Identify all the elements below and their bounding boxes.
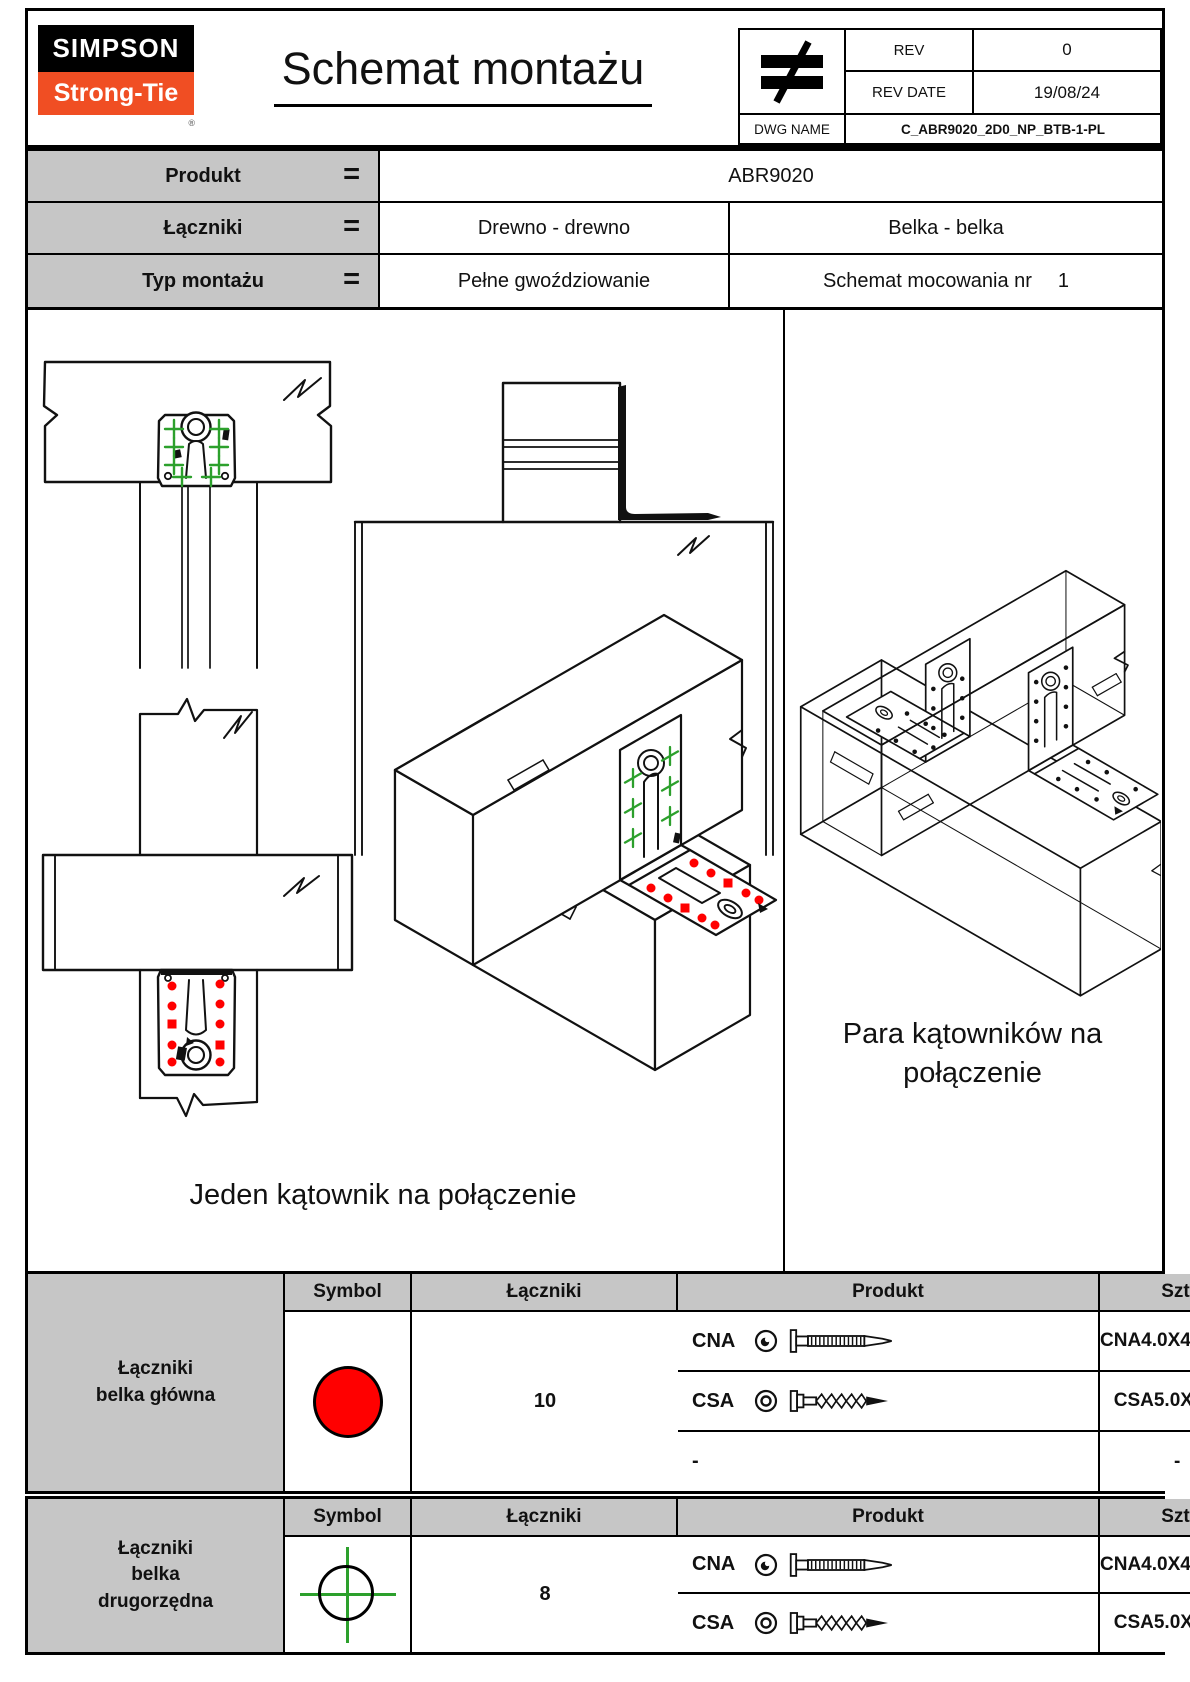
wood-screw-icon	[788, 1386, 908, 1416]
not-equal-projection-icon	[759, 43, 825, 101]
fastener-row-csa: CSA	[678, 1594, 1100, 1652]
fastener-row-csa: CSA	[678, 1372, 1100, 1432]
title-block: SIMPSON Strong-Tie® Schemat montażu REV …	[25, 8, 1165, 148]
mount-type-value: Pełne gwoździowanie	[380, 255, 730, 307]
simpson-strongtie-logo: SIMPSON Strong-Tie®	[38, 25, 194, 115]
rev-date-label: REV DATE	[846, 72, 974, 115]
fastener-table-secondary-beam: Łączniki belka drugorzędna Symbol Łączni…	[25, 1496, 1165, 1655]
rev-value: 0	[974, 30, 1160, 72]
cna-head-icon	[753, 1328, 779, 1354]
fasteners-value-left: Drewno - drewno	[380, 203, 730, 253]
csa-head-icon	[753, 1610, 779, 1636]
revision-block: REV 0 REV DATE 19/08/24 DWG NAME C_ABR90…	[738, 28, 1162, 145]
product-csa: CSA5.0X40/50	[1100, 1372, 1190, 1432]
product-empty: -	[1100, 1432, 1190, 1491]
page-title: Schemat montażu	[274, 43, 653, 107]
group-label-secondary-beam: Łączniki belka drugorzędna	[28, 1499, 285, 1652]
fastener-code: CNA	[692, 1330, 744, 1353]
logo-simpson: SIMPSON	[38, 25, 194, 72]
wood-screw-icon	[788, 1608, 908, 1638]
green-crosshair-symbol-icon	[300, 1547, 396, 1643]
group-label-main-beam: Łączniki belka główna	[28, 1274, 285, 1491]
bracket-pair-panel	[783, 310, 1162, 1271]
bracket-pair-caption: Para kątowników na połączenie	[785, 1015, 1160, 1093]
cna-head-icon	[753, 1552, 779, 1578]
col-header-fasteners: Łączniki	[412, 1274, 678, 1312]
col-header-symbol: Symbol	[285, 1274, 412, 1312]
product-cna: CNA4.0X40/50/60	[1100, 1312, 1190, 1372]
product-info-table: Produkt= ABR9020 Łączniki= Drewno - drew…	[25, 148, 1165, 310]
ring-shank-nail-icon	[788, 1550, 908, 1580]
secondary-beam-symbol-cell	[285, 1537, 412, 1652]
fastener-code: CNA	[692, 1553, 744, 1576]
mount-schema-cell: Schemat mocowania nr1	[730, 255, 1162, 307]
col-header-product: Produkt	[678, 1499, 1100, 1537]
equals-sign: =	[343, 263, 360, 296]
fastener-row-cna: CNA	[678, 1312, 1100, 1372]
single-bracket-caption: Jeden kątownik na połączenie	[73, 1176, 693, 1215]
fastener-code: CSA	[692, 1390, 744, 1413]
red-circle-symbol-icon	[313, 1366, 383, 1438]
equals-sign: =	[343, 158, 360, 191]
dwg-name-value: C_ABR9020_2D0_NP_BTB-1-PL	[846, 115, 1160, 143]
logo-strongtie: Strong-Tie®	[38, 72, 194, 115]
mount-type-label-cell: Typ montażu=	[28, 255, 380, 307]
dwg-name-label: DWG NAME	[740, 115, 846, 143]
product-label-cell: Produkt=	[28, 151, 380, 201]
ring-shank-nail-icon	[788, 1326, 908, 1356]
schema-number: 1	[1058, 270, 1069, 293]
fastener-table-main-beam: Łączniki belka główna Symbol Łączniki Pr…	[25, 1271, 1165, 1494]
col-header-fasteners: Łączniki	[412, 1499, 678, 1537]
main-beam-symbol-cell	[285, 1312, 412, 1491]
fastener-row-empty: -	[678, 1432, 1100, 1491]
col-header-qty: Szt.	[1100, 1274, 1190, 1312]
fastener-code: CSA	[692, 1612, 744, 1635]
col-header-qty: Szt.	[1100, 1499, 1190, 1537]
qty-main-beam: 10	[412, 1312, 678, 1491]
product-value: ABR9020	[380, 151, 1162, 201]
drawing-area: Jeden kątownik na połączenie Para kątown…	[25, 307, 1165, 1274]
single-bracket-views-drawing	[28, 310, 783, 1271]
rev-date-value: 19/08/24	[974, 72, 1160, 115]
projection-symbol-cell	[740, 30, 846, 115]
csa-head-icon	[753, 1388, 779, 1414]
rev-label: REV	[846, 30, 974, 72]
registered-mark: ®	[188, 118, 195, 128]
fasteners-value-right: Belka - belka	[730, 203, 1162, 253]
product-csa: CSA5.0X40/50	[1100, 1594, 1190, 1652]
drawing-sheet: SIMPSON Strong-Tie® Schemat montażu REV …	[0, 0, 1190, 1682]
qty-secondary-beam: 8	[412, 1537, 678, 1652]
col-header-symbol: Symbol	[285, 1499, 412, 1537]
bracket-pair-drawing	[785, 310, 1161, 1271]
col-header-product: Produkt	[678, 1274, 1100, 1312]
fastener-row-cna: CNA	[678, 1537, 1100, 1594]
fasteners-label-cell: Łączniki=	[28, 203, 380, 253]
product-cna: CNA4.0X40/50/60	[1100, 1537, 1190, 1594]
equals-sign: =	[343, 210, 360, 243]
